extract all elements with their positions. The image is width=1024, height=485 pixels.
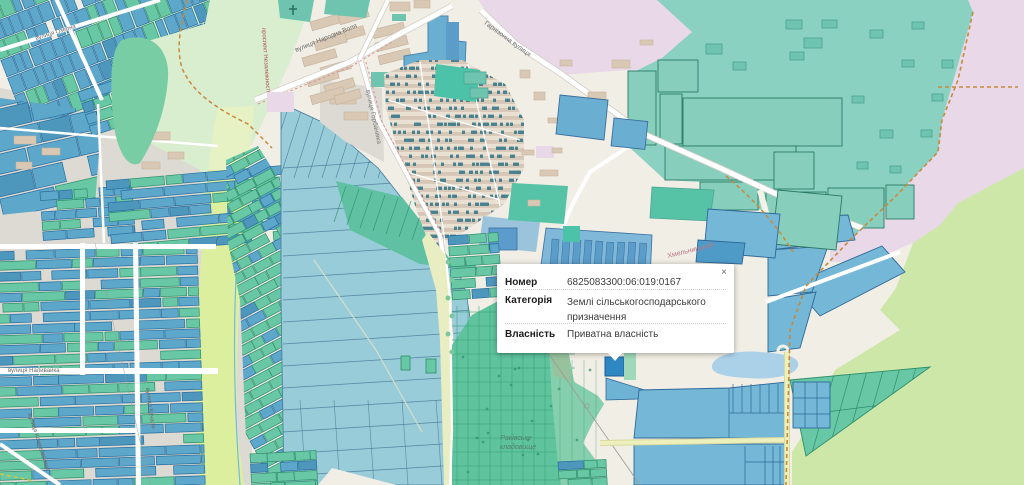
svg-text:вулиця Наливайка: вулиця Наливайка <box>8 367 60 374</box>
svg-text:кладовище: кладовище <box>500 443 536 451</box>
svg-text:Раківське: Раківське <box>500 434 531 442</box>
